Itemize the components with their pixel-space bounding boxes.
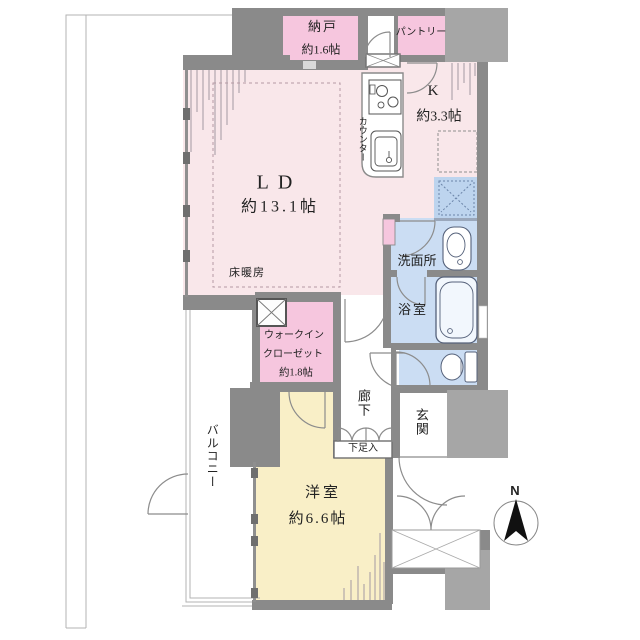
wall-bath-divider-stub [391, 270, 397, 277]
bathtub [436, 277, 477, 343]
western-room-size-label: 約6.6帖 [289, 512, 348, 528]
ld-size-label: 約13.1帖 [241, 200, 319, 217]
pantry-label: パントリー [396, 28, 447, 39]
mass-western-left [230, 388, 280, 467]
western-west-window-wall [253, 462, 256, 602]
compass-north-arrow [504, 499, 528, 541]
wall-western-bottom [252, 600, 392, 610]
bathroom-label: 浴室 [398, 303, 428, 317]
washroom-shelf [383, 219, 395, 245]
ld-room-label: LD [257, 173, 302, 194]
window-mullion [251, 468, 258, 478]
shoe-cabinet-label: 下足入 [348, 444, 378, 455]
mass-top-right [445, 8, 508, 62]
western-room-upper-floor [278, 388, 335, 464]
window-mullion [183, 108, 190, 120]
wall-right-mid [477, 218, 488, 390]
window-mullion [251, 514, 258, 524]
wall-nando-bottom [283, 60, 368, 70]
ld-west-window-wall [185, 70, 188, 297]
western-room-floor [255, 458, 388, 603]
entrance-closet-box [392, 530, 480, 568]
toilet [441, 352, 477, 382]
wall-bath-divider [427, 270, 477, 277]
nando-door-gap [303, 61, 316, 69]
balcony-gate-door [148, 474, 188, 514]
wall-bath-bottom [391, 343, 477, 350]
floorplan-canvas: LD 約13.1帖 床暖房 納戸 約1.6帖 パントリー K 約3.3帖 カウン… [0, 0, 640, 640]
vanity-basin [443, 227, 471, 270]
kitchen-room-label: K [428, 84, 439, 100]
floorplan-drawing [0, 0, 640, 640]
washer-bottom-edge [434, 218, 478, 221]
entrance-closet-doors [397, 496, 465, 530]
entrance-label: 玄関 [414, 408, 428, 436]
stove [369, 80, 401, 114]
western-room-label: 洋室 [305, 486, 341, 502]
window-mullion [183, 205, 190, 217]
wall-top [283, 8, 447, 16]
nando-room-label: 納戸 [308, 20, 338, 34]
window-mullion [183, 152, 190, 164]
pantry-shaft-box [366, 54, 400, 67]
counter-label: カウンター [357, 117, 366, 162]
hallway-label: 廊下 [356, 389, 370, 417]
wic-label-line2: クローゼット [263, 350, 323, 361]
bath-window [479, 306, 487, 338]
wic-size-label: 約1.8帖 [279, 367, 313, 378]
washroom-label: 洗面所 [397, 254, 436, 268]
floor-heating-label: 床暖房 [229, 268, 265, 280]
kitchen-size-label: 約3.3帖 [416, 111, 462, 126]
nando-size-label: 約1.6帖 [301, 44, 340, 57]
wic-shaft-box [257, 299, 286, 326]
wall-topleft-chunk [232, 8, 283, 58]
mass-entrance-right [447, 390, 508, 458]
wall-hallway-left [333, 295, 341, 458]
wall-pantry-bottom [397, 55, 445, 62]
wall-kitchen-right [477, 62, 488, 218]
wic-label-line1: ウォークイン [264, 331, 324, 342]
window-mullion [183, 250, 190, 262]
window-mullion [251, 588, 258, 598]
compass-north-label: N [510, 484, 519, 498]
balcony-label: バルコニー [206, 424, 219, 489]
kitchen-sink [371, 131, 401, 171]
compass [494, 499, 538, 545]
window-mullion [251, 536, 258, 546]
wall-toilet-left [391, 350, 396, 390]
wall-ld-bottom [183, 295, 257, 310]
